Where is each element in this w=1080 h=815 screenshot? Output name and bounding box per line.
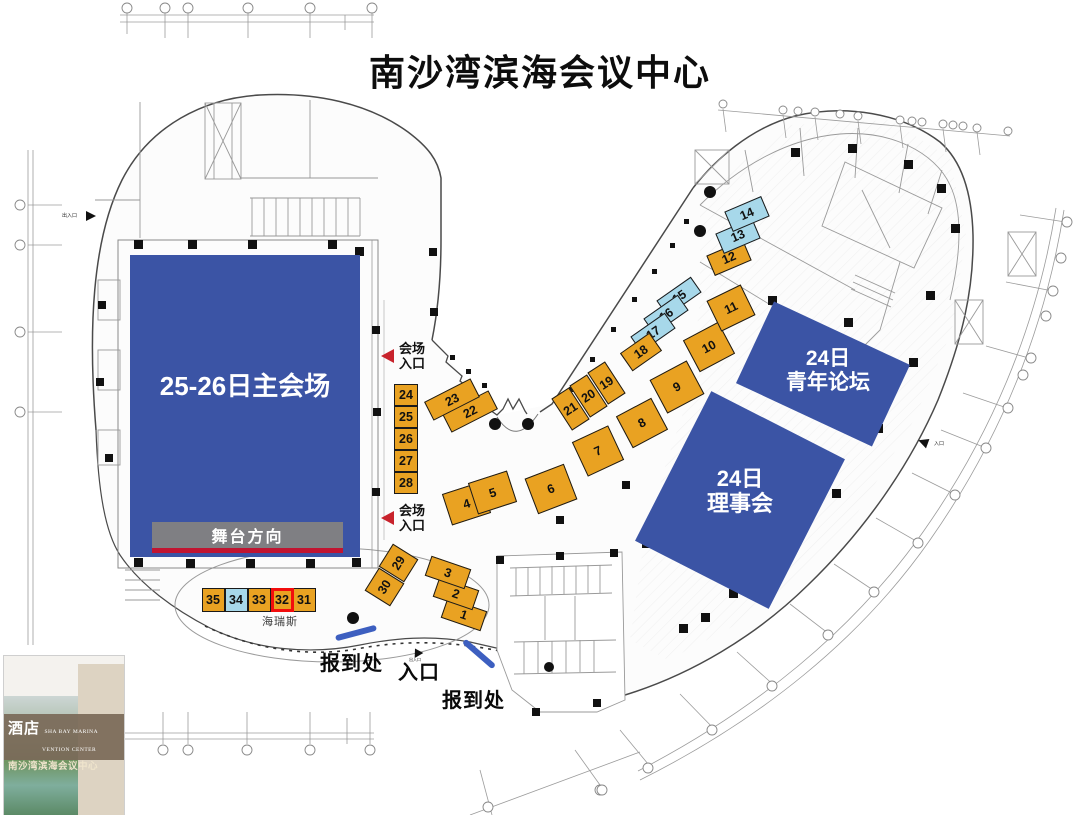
main-hall-area <box>130 255 360 557</box>
booth-25: 25 <box>394 406 418 428</box>
brand-card-hotel-text: 酒店 <box>8 720 40 737</box>
booth-31: 31 <box>293 588 316 612</box>
entrance-arrow-lower-icon <box>381 511 394 525</box>
hall-entrance-lower-label: 会场 入口 <box>399 503 425 533</box>
main-hall-label: 25-26日主会场 <box>130 366 360 403</box>
booth-35: 35 <box>202 588 225 612</box>
booth-27: 27 <box>394 450 418 472</box>
council-label: 24日 理事会 <box>660 466 820 517</box>
floorplan-poster: 南沙湾滨海会议中心 25-26日主会场 舞台方向 24日 青年论坛 24日 理事… <box>0 0 1080 815</box>
hall-entrance-upper-label: 会场 入口 <box>399 341 425 371</box>
east-entrance-label: 入口 <box>934 440 944 447</box>
booth32-note: 海瑞斯 <box>262 613 298 629</box>
page-title: 南沙湾滨海会议中心 <box>0 44 1080 96</box>
brand-card-band: 酒店 SHA BAY MARINA VENTION CENTER 南沙湾滨海会议… <box>4 714 124 760</box>
entrance-arrow-upper-icon <box>381 349 394 363</box>
youth-forum-label: 24日 青年论坛 <box>748 347 908 395</box>
booth-28: 28 <box>394 472 418 494</box>
main-entrance-label: 入口 <box>398 656 440 685</box>
brand-card-en2: VENTION CENTER <box>42 747 96 753</box>
booth-34: 34 <box>225 588 248 612</box>
registration-left-label: 报到处 <box>320 647 383 676</box>
brand-card-cn-name: 南沙湾滨海会议中心 <box>8 758 120 772</box>
registration-right-label: 报到处 <box>442 684 505 713</box>
booth-32: 32 <box>271 588 294 612</box>
west-entrance-arrow-icon <box>86 211 96 221</box>
booth-26: 26 <box>394 428 418 450</box>
west-entrance-label: 出入口 <box>62 212 77 219</box>
stage-direction-bar: 舞台方向 <box>152 522 343 548</box>
stage-direction-label: 舞台方向 <box>211 523 283 547</box>
brand-card-en1: SHA BAY MARINA <box>44 729 98 735</box>
brand-card: 酒店 SHA BAY MARINA VENTION CENTER 南沙湾滨海会议… <box>4 656 124 815</box>
stage-front-strip <box>152 548 343 553</box>
booth-33: 33 <box>248 588 271 612</box>
booth-24: 24 <box>394 384 418 406</box>
